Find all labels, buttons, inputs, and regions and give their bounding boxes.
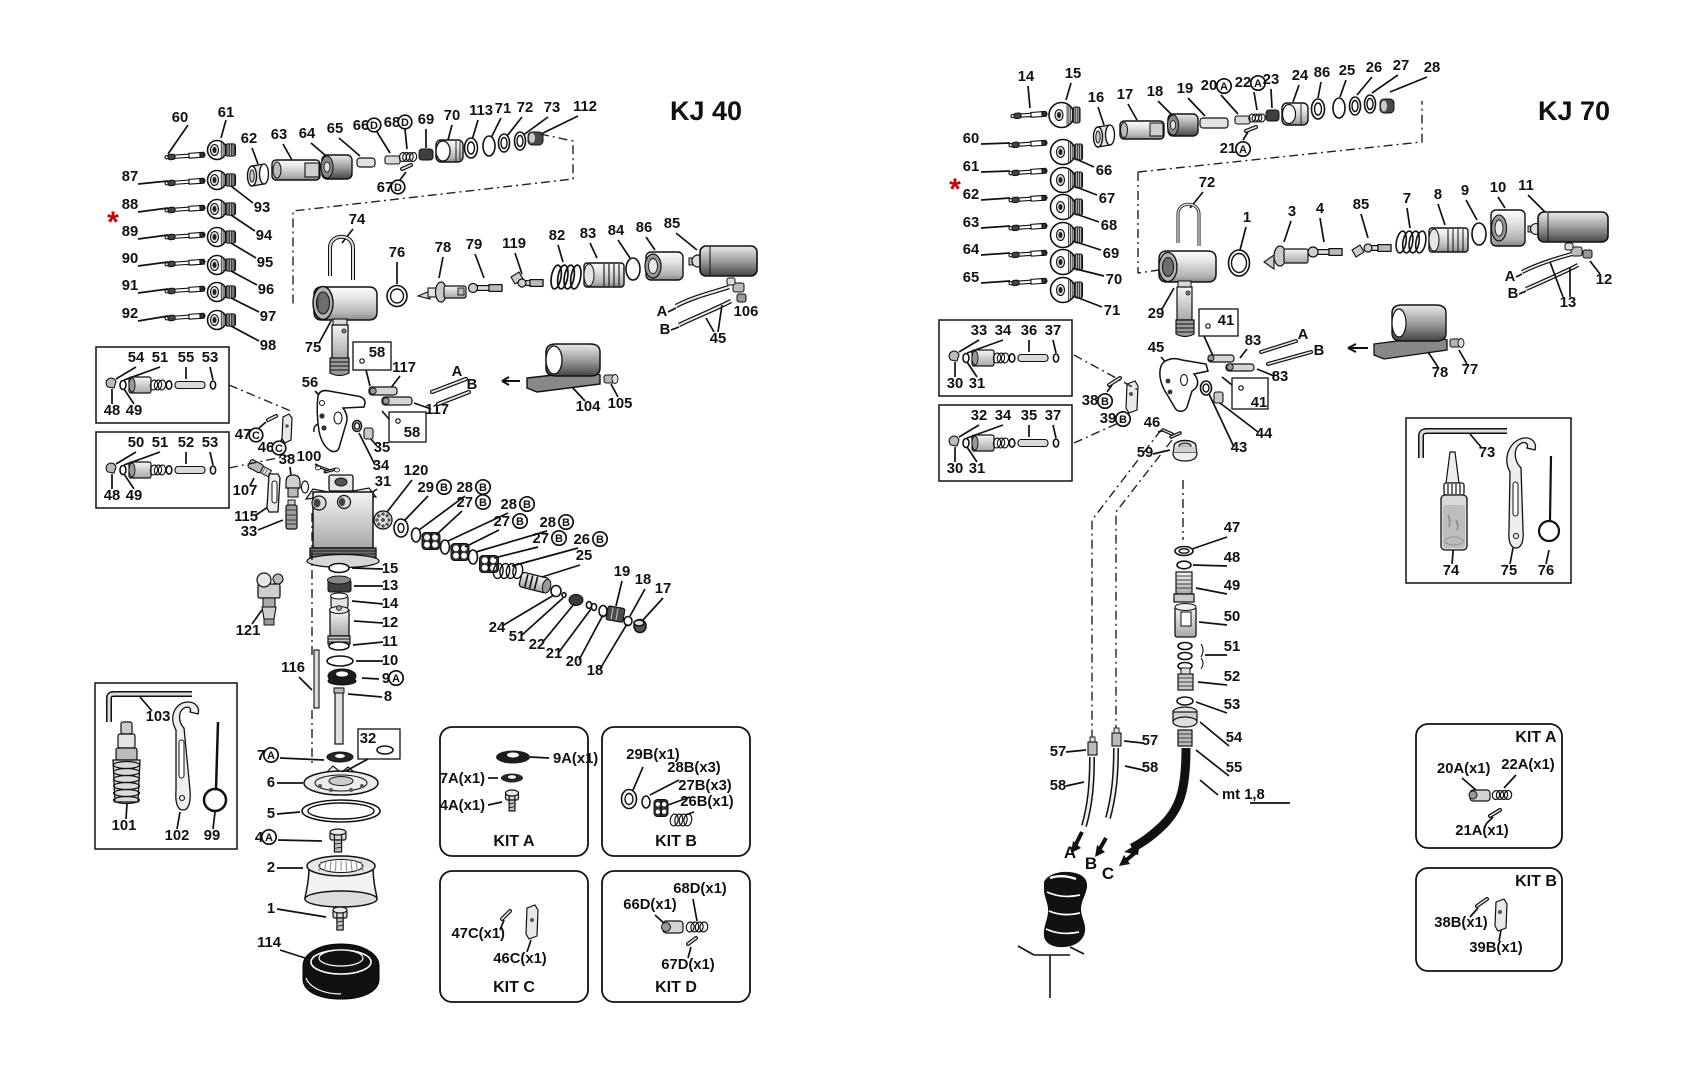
svg-text:4A(x1): 4A(x1) [440, 798, 485, 814]
svg-text:64: 64 [963, 242, 980, 258]
svg-text:37: 37 [1045, 408, 1061, 424]
svg-text:50: 50 [128, 435, 144, 451]
svg-text:KIT C: KIT C [493, 979, 535, 996]
svg-text:A: A [1505, 269, 1516, 285]
svg-text:120: 120 [404, 463, 429, 479]
svg-text:53: 53 [202, 350, 218, 366]
svg-text:D: D [401, 117, 409, 129]
svg-text:52: 52 [1224, 669, 1240, 685]
svg-text:B: B [1119, 414, 1127, 426]
svg-text:B: B [523, 499, 531, 511]
svg-text:27B(x3): 27B(x3) [678, 778, 732, 794]
svg-text:31: 31 [969, 461, 985, 477]
svg-text:46: 46 [1144, 415, 1160, 431]
svg-text:100: 100 [297, 449, 322, 465]
svg-text:KIT B: KIT B [655, 833, 697, 850]
svg-text:22A(x1): 22A(x1) [1501, 757, 1555, 773]
svg-text:35: 35 [1021, 408, 1037, 424]
svg-text:65: 65 [963, 270, 979, 286]
svg-text:76: 76 [389, 245, 405, 261]
svg-text:73: 73 [1479, 445, 1495, 461]
svg-text:A: A [1220, 81, 1228, 93]
svg-text:117: 117 [392, 360, 416, 376]
svg-text:A: A [1298, 327, 1309, 343]
svg-text:KIT A: KIT A [1515, 729, 1557, 746]
svg-text:13: 13 [382, 578, 398, 594]
svg-text:61: 61 [218, 105, 234, 121]
svg-text:11: 11 [1518, 178, 1534, 194]
svg-text:87: 87 [122, 169, 138, 185]
svg-text:12: 12 [382, 615, 398, 631]
svg-text:28B(x3): 28B(x3) [667, 760, 721, 776]
svg-text:49: 49 [126, 488, 142, 504]
svg-text:B: B [1101, 396, 1109, 408]
svg-text:B: B [596, 534, 604, 546]
svg-text:A: A [1064, 843, 1076, 862]
svg-text:68: 68 [1101, 218, 1117, 234]
svg-text:26: 26 [1366, 60, 1382, 76]
svg-text:B: B [1085, 854, 1097, 873]
svg-text:47C(x1): 47C(x1) [452, 926, 506, 942]
svg-text:76: 76 [1538, 563, 1554, 579]
svg-text:55: 55 [1226, 760, 1242, 776]
svg-text:69: 69 [418, 112, 434, 128]
svg-text:33: 33 [971, 323, 987, 339]
svg-text:51: 51 [152, 435, 168, 451]
svg-text:46C(x1): 46C(x1) [493, 951, 547, 967]
svg-text:2: 2 [267, 860, 275, 876]
svg-text:97: 97 [260, 309, 276, 325]
svg-text:83: 83 [580, 226, 596, 242]
svg-text:A: A [452, 364, 463, 380]
svg-text:78: 78 [435, 240, 451, 256]
svg-text:7A(x1): 7A(x1) [440, 771, 485, 787]
svg-text:48: 48 [104, 488, 120, 504]
svg-text:10: 10 [382, 653, 398, 669]
svg-text:49: 49 [126, 403, 142, 419]
svg-text:23: 23 [1263, 72, 1279, 88]
svg-text:74: 74 [349, 212, 366, 228]
svg-text:85: 85 [1353, 197, 1369, 213]
svg-text:26B(x1): 26B(x1) [680, 794, 734, 810]
svg-text:10: 10 [1490, 180, 1506, 196]
svg-text:43: 43 [1231, 440, 1247, 456]
svg-text:79: 79 [466, 237, 482, 253]
svg-text:A: A [392, 673, 400, 685]
svg-text:21A(x1): 21A(x1) [1455, 823, 1509, 839]
svg-text:38B(x1): 38B(x1) [1434, 915, 1488, 931]
svg-text:78: 78 [1432, 365, 1448, 381]
svg-text:A: A [265, 832, 273, 844]
svg-text:15: 15 [1065, 66, 1081, 82]
svg-text:104: 104 [576, 399, 601, 415]
svg-text:17: 17 [655, 581, 671, 597]
svg-text:B: B [1508, 286, 1519, 302]
svg-text:18: 18 [587, 663, 603, 679]
svg-text:67: 67 [1099, 191, 1115, 207]
svg-text:85: 85 [664, 216, 680, 232]
svg-text:*: * [107, 206, 119, 239]
svg-text:121: 121 [236, 623, 261, 639]
svg-text:77: 77 [1462, 362, 1478, 378]
svg-text:B: B [479, 497, 487, 509]
svg-text:KJ 70: KJ 70 [1538, 96, 1610, 126]
svg-text:60: 60 [172, 110, 188, 126]
svg-text:*: * [949, 173, 961, 206]
svg-text:31: 31 [375, 474, 391, 490]
svg-text:58: 58 [369, 345, 385, 361]
svg-text:57: 57 [1142, 733, 1158, 749]
svg-text:48: 48 [1224, 550, 1240, 566]
svg-text:119: 119 [502, 236, 526, 252]
svg-text:68D(x1): 68D(x1) [673, 881, 727, 897]
svg-text:28: 28 [1424, 60, 1440, 76]
svg-text:4: 4 [1316, 201, 1325, 217]
svg-text:92: 92 [122, 306, 138, 322]
svg-text:89: 89 [122, 224, 138, 240]
svg-text:66D(x1): 66D(x1) [623, 897, 677, 913]
svg-text:30: 30 [947, 376, 963, 392]
svg-text:99: 99 [204, 828, 220, 844]
svg-text:B: B [1314, 343, 1325, 359]
svg-text:83: 83 [1272, 369, 1288, 385]
svg-text:48: 48 [104, 403, 120, 419]
svg-text:58: 58 [404, 425, 420, 441]
svg-text:74: 74 [1443, 563, 1460, 579]
svg-text:27: 27 [494, 514, 510, 530]
svg-text:KIT A: KIT A [493, 833, 535, 850]
svg-text:62: 62 [241, 131, 257, 147]
svg-text:58: 58 [1050, 778, 1066, 794]
svg-text:47: 47 [1224, 520, 1240, 536]
svg-text:56: 56 [302, 375, 318, 391]
svg-text:D: D [370, 120, 378, 132]
svg-text:45: 45 [1148, 340, 1164, 356]
svg-text:34: 34 [995, 323, 1012, 339]
svg-text:A: A [267, 750, 275, 762]
svg-text:86: 86 [1314, 65, 1330, 81]
svg-text:27: 27 [1393, 58, 1409, 74]
svg-text:21: 21 [546, 646, 562, 662]
svg-text:19: 19 [614, 564, 630, 580]
svg-text:33: 33 [241, 524, 257, 540]
svg-text:112: 112 [573, 99, 597, 115]
svg-text:53: 53 [202, 435, 218, 451]
svg-text:84: 84 [608, 223, 625, 239]
svg-text:71: 71 [495, 101, 511, 117]
svg-text:1: 1 [1243, 210, 1251, 226]
svg-text:9A(x1): 9A(x1) [553, 751, 598, 767]
svg-text:KIT D: KIT D [655, 979, 697, 996]
svg-text:8: 8 [384, 689, 392, 705]
svg-text:24: 24 [1292, 68, 1309, 84]
svg-text:17: 17 [1117, 87, 1133, 103]
svg-text:39B(x1): 39B(x1) [1469, 940, 1523, 956]
svg-text:107: 107 [233, 483, 258, 499]
svg-text:63: 63 [271, 127, 287, 143]
svg-text:37: 37 [1045, 323, 1061, 339]
svg-text:54: 54 [128, 350, 145, 366]
svg-text:62: 62 [963, 187, 979, 203]
svg-text:106: 106 [734, 304, 759, 320]
svg-text:102: 102 [165, 828, 190, 844]
svg-text:61: 61 [963, 159, 979, 175]
svg-text:55: 55 [178, 350, 194, 366]
svg-text:86: 86 [636, 220, 652, 236]
svg-text:30: 30 [947, 461, 963, 477]
svg-text:9: 9 [1461, 183, 1469, 199]
svg-text:96: 96 [258, 282, 274, 298]
svg-text:32: 32 [971, 408, 987, 424]
svg-text:101: 101 [112, 818, 137, 834]
svg-text:34: 34 [995, 408, 1012, 424]
svg-text:45: 45 [710, 331, 726, 347]
svg-text:13: 13 [1560, 295, 1576, 311]
svg-text:B: B [516, 516, 524, 528]
svg-text:21: 21 [1220, 141, 1236, 157]
svg-text:27: 27 [533, 531, 549, 547]
svg-text:41: 41 [1251, 395, 1267, 411]
svg-text:14: 14 [382, 596, 399, 612]
svg-text:51: 51 [152, 350, 168, 366]
svg-text:B: B [562, 517, 570, 529]
svg-text:70: 70 [1106, 272, 1122, 288]
svg-text:28: 28 [540, 515, 556, 531]
svg-text:35: 35 [374, 440, 390, 456]
svg-text:91: 91 [122, 278, 138, 294]
svg-text:72: 72 [1199, 175, 1215, 191]
svg-text:41: 41 [1218, 313, 1234, 329]
svg-text:15: 15 [382, 561, 398, 577]
svg-text:93: 93 [254, 200, 270, 216]
svg-text:8: 8 [1434, 187, 1442, 203]
svg-text:53: 53 [1224, 697, 1240, 713]
svg-text:25: 25 [1339, 63, 1355, 79]
svg-text:72: 72 [517, 100, 533, 116]
svg-text:38: 38 [1082, 393, 1098, 409]
svg-text:28: 28 [501, 497, 517, 513]
svg-text:75: 75 [1501, 563, 1517, 579]
svg-text:KJ 40: KJ 40 [670, 96, 742, 126]
svg-text:20: 20 [1201, 78, 1217, 94]
svg-text:64: 64 [299, 126, 316, 142]
svg-text:115: 115 [234, 509, 258, 525]
svg-text:D: D [394, 182, 402, 194]
svg-text:83: 83 [1245, 333, 1261, 349]
svg-text:60: 60 [963, 131, 979, 147]
svg-text:98: 98 [260, 338, 276, 354]
svg-text:22: 22 [1235, 75, 1251, 91]
svg-text:7: 7 [1403, 191, 1411, 207]
svg-text:57: 57 [1050, 744, 1066, 760]
svg-text:49: 49 [1224, 578, 1240, 594]
svg-text:14: 14 [1018, 69, 1035, 85]
svg-text:113: 113 [469, 103, 493, 119]
svg-text:82: 82 [549, 228, 565, 244]
svg-text:50: 50 [1224, 609, 1240, 625]
svg-text:105: 105 [608, 396, 633, 412]
svg-text:31: 31 [969, 376, 985, 392]
svg-text:95: 95 [257, 255, 273, 271]
svg-text:B: B [479, 482, 487, 494]
svg-text:25: 25 [576, 548, 592, 564]
svg-text:58: 58 [1142, 760, 1158, 776]
svg-text:mt 1,8: mt 1,8 [1222, 787, 1265, 803]
svg-text:73: 73 [544, 100, 560, 116]
svg-text:69: 69 [1103, 246, 1119, 262]
svg-text:26: 26 [574, 532, 590, 548]
svg-text:B: B [660, 322, 671, 338]
svg-text:90: 90 [122, 251, 138, 267]
svg-text:6: 6 [267, 775, 275, 791]
svg-text:65: 65 [327, 121, 343, 137]
svg-text:A: A [657, 304, 668, 320]
svg-text:B: B [440, 482, 448, 494]
svg-text:71: 71 [1104, 303, 1120, 319]
svg-text:KIT B: KIT B [1515, 873, 1557, 890]
svg-text:18: 18 [635, 572, 651, 588]
svg-text:51: 51 [1224, 639, 1240, 655]
svg-text:70: 70 [444, 108, 460, 124]
svg-text:A: A [1239, 144, 1247, 156]
svg-text:24: 24 [489, 620, 506, 636]
svg-text:19: 19 [1177, 81, 1193, 97]
svg-text:27: 27 [457, 495, 473, 511]
svg-text:20: 20 [566, 654, 582, 670]
svg-text:88: 88 [122, 197, 138, 213]
svg-text:52: 52 [178, 435, 194, 451]
svg-text:66: 66 [1096, 163, 1112, 179]
svg-text:11: 11 [382, 634, 398, 650]
svg-text:B: B [555, 533, 563, 545]
svg-text:36: 36 [1021, 323, 1037, 339]
svg-text:3: 3 [1288, 204, 1296, 220]
svg-text:C: C [1102, 864, 1114, 883]
svg-text:44: 44 [1256, 426, 1273, 442]
svg-text:A: A [1254, 78, 1262, 90]
svg-text:59: 59 [1137, 445, 1153, 461]
svg-text:51: 51 [509, 629, 525, 645]
svg-text:38: 38 [279, 452, 295, 468]
svg-text:16: 16 [1088, 90, 1104, 106]
svg-text:1: 1 [267, 901, 275, 917]
svg-text:63: 63 [963, 215, 979, 231]
svg-text:116: 116 [281, 660, 305, 676]
svg-text:29: 29 [418, 480, 434, 496]
svg-text:18: 18 [1147, 84, 1163, 100]
svg-text:22: 22 [529, 637, 545, 653]
svg-text:5: 5 [267, 806, 275, 822]
svg-text:114: 114 [257, 935, 282, 951]
svg-text:34: 34 [373, 458, 390, 474]
svg-text:94: 94 [256, 228, 273, 244]
svg-text:67D(x1): 67D(x1) [661, 957, 715, 973]
svg-text:12: 12 [1596, 272, 1612, 288]
svg-text:32: 32 [360, 731, 376, 747]
svg-text:28: 28 [457, 480, 473, 496]
svg-text:54: 54 [1226, 730, 1243, 746]
svg-text:103: 103 [146, 709, 171, 725]
svg-text:20A(x1): 20A(x1) [1437, 761, 1491, 777]
